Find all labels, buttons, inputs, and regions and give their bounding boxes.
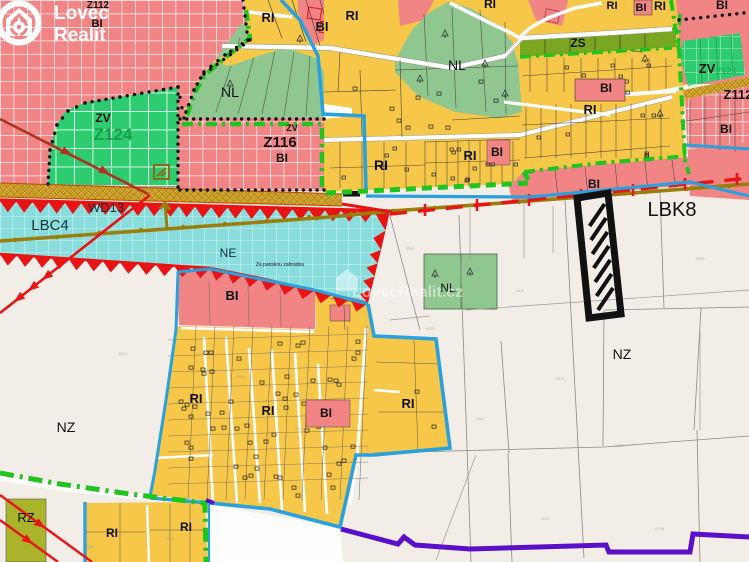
svg-text:9387: 9387 <box>616 443 626 448</box>
svg-text:Za panskou zahradou: Za panskou zahradou <box>256 262 305 268</box>
svg-text:BI: BI <box>226 288 239 303</box>
svg-text:Lovec: Lovec <box>54 3 109 24</box>
svg-text:BI: BI <box>636 2 647 14</box>
svg-text:9320: 9320 <box>426 326 436 331</box>
svg-text:BI: BI <box>491 145 503 159</box>
svg-text:BI: BI <box>716 0 728 12</box>
svg-text:BI: BI <box>316 19 329 34</box>
svg-text:BI: BI <box>720 122 732 136</box>
svg-text:8316: 8316 <box>406 246 416 251</box>
svg-text:Z112: Z112 <box>724 87 749 102</box>
svg-text:Z116: Z116 <box>263 134 296 151</box>
svg-text:RI: RI <box>262 403 275 418</box>
svg-text:LBC4: LBC4 <box>31 217 69 234</box>
svg-text:WD13: WD13 <box>88 200 124 215</box>
svg-text:NE: NE <box>220 246 237 260</box>
svg-text:NL: NL <box>221 84 239 100</box>
svg-text:4025: 4025 <box>541 516 551 521</box>
svg-text:Z123: Z123 <box>716 66 737 76</box>
svg-text:ZS: ZS <box>570 36 585 50</box>
svg-text:8411: 8411 <box>119 351 128 356</box>
svg-text:RI: RI <box>584 102 597 117</box>
svg-text:RI: RI <box>484 0 496 11</box>
svg-text:BI: BI <box>276 151 288 165</box>
svg-text:RI: RI <box>402 396 415 411</box>
svg-text:2485: 2485 <box>86 544 96 549</box>
svg-text:LBK8: LBK8 <box>648 199 697 221</box>
svg-text:2542: 2542 <box>476 416 486 421</box>
svg-text:RI: RI <box>262 10 275 25</box>
svg-text:RI: RI <box>374 157 388 173</box>
svg-text:ZV: ZV <box>95 111 110 125</box>
svg-text:5970: 5970 <box>556 376 566 381</box>
svg-text:BI: BI <box>588 177 600 191</box>
svg-text:Realit: Realit <box>54 25 106 46</box>
svg-text:8794: 8794 <box>656 526 666 531</box>
svg-text:RZ: RZ <box>17 510 34 525</box>
svg-text:4111: 4111 <box>516 288 525 293</box>
svg-text:ZV: ZV <box>286 123 298 133</box>
svg-text:RI: RI <box>180 520 192 534</box>
svg-text:RI: RI <box>654 0 666 13</box>
svg-text:NZ: NZ <box>57 419 76 435</box>
svg-text:RI: RI <box>106 526 118 540</box>
svg-text:RI: RI <box>607 0 618 12</box>
svg-text:RI: RI <box>464 148 477 163</box>
svg-text:NZ: NZ <box>613 346 632 362</box>
svg-text:BI: BI <box>600 81 612 95</box>
svg-text:8402: 8402 <box>296 426 306 431</box>
svg-text:LovecRealit.cz: LovecRealit.cz <box>352 284 463 301</box>
svg-text:Z124: Z124 <box>94 125 133 144</box>
svg-text:BI: BI <box>320 406 332 420</box>
svg-text:RI: RI <box>346 8 359 23</box>
svg-text:3323: 3323 <box>166 536 176 541</box>
svg-text:8629: 8629 <box>236 374 246 379</box>
svg-text:ZV: ZV <box>699 61 716 76</box>
svg-text:NL: NL <box>448 57 466 73</box>
svg-text:4050: 4050 <box>696 256 706 261</box>
svg-text:RI: RI <box>190 391 203 406</box>
